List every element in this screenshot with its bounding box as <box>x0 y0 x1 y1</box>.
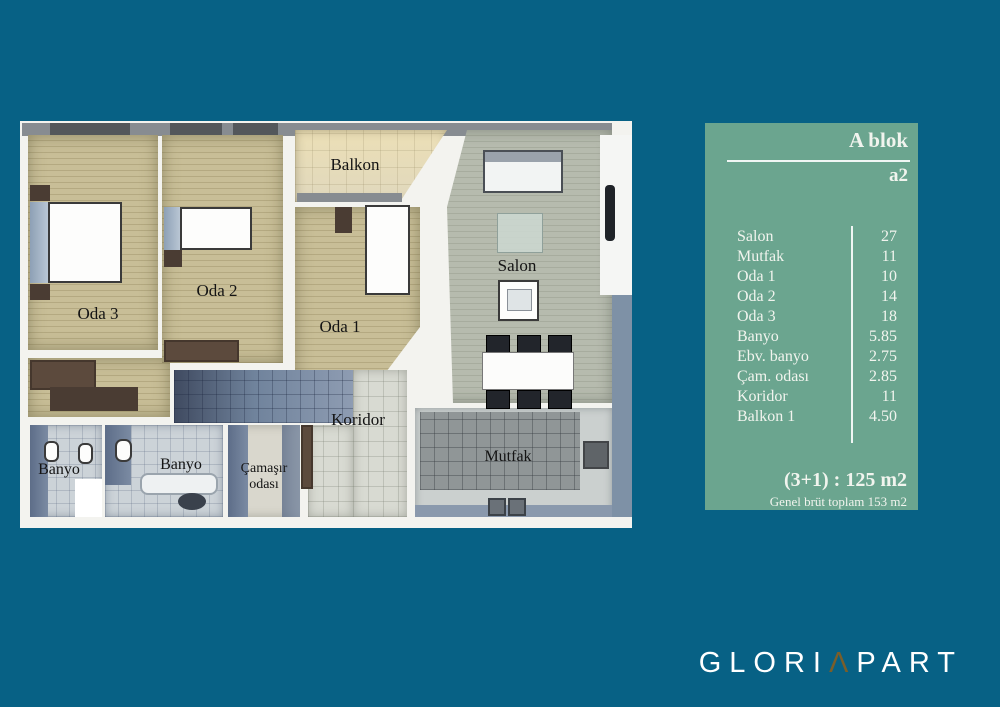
label-salon: Salon <box>498 256 537 276</box>
bed-oda3 <box>48 202 122 283</box>
banyo-small-doorway <box>75 479 102 517</box>
kitchen-sink-left <box>488 498 506 516</box>
label-koridor: Koridor <box>331 410 385 430</box>
summary-note: Genel brüt toplam 153 m2 <box>770 494 907 510</box>
dining-chair <box>486 390 510 409</box>
label-oda1: Oda 1 <box>319 317 360 337</box>
logo-part2: PART <box>856 647 963 679</box>
room-row-label: Salon <box>737 228 773 246</box>
nightstand-oda3-bottom <box>30 284 50 300</box>
room-row-area: 18 <box>881 308 897 326</box>
room-row: Mutfak11 <box>705 248 918 268</box>
koridor-lower-strip <box>308 425 353 517</box>
nightstand-oda3-top <box>30 185 50 201</box>
label-banyo-main: Banyo <box>160 456 202 474</box>
kitchen-sink-right <box>508 498 526 516</box>
stove <box>583 441 609 469</box>
nightstand-oda1 <box>335 207 352 233</box>
room-row-area: 2.85 <box>869 368 897 386</box>
label-camasir-line1: Çamaşır <box>241 461 288 477</box>
label-oda2: Oda 2 <box>196 281 237 301</box>
room-row-label: Mutfak <box>737 248 784 266</box>
bed-oda2 <box>180 207 252 250</box>
logo-part1: GLORI <box>699 647 829 679</box>
room-row-label: Çam. odası <box>737 368 809 386</box>
room-row: Koridor11 <box>705 388 918 408</box>
hall-tiled-band <box>174 370 353 423</box>
bed-headboard-oda3 <box>30 202 48 283</box>
dining-chair <box>548 390 572 409</box>
label-banyo-small: Banyo <box>38 461 80 479</box>
door-panel <box>301 425 313 489</box>
room-row-area: 5.85 <box>869 328 897 346</box>
room-row-area: 11 <box>882 248 897 266</box>
bathtub <box>140 473 218 495</box>
room-row-area: 10 <box>881 268 897 286</box>
panel-divider-line <box>727 160 910 162</box>
room-row-label: Oda 1 <box>737 268 776 286</box>
dining-table <box>482 352 574 390</box>
label-oda3: Oda 3 <box>77 304 118 324</box>
dresser-oda2 <box>164 340 239 362</box>
sofa <box>483 150 563 193</box>
room-table: Salon27Mutfak11Oda 110Oda 214Oda 318Bany… <box>705 228 918 428</box>
room-row-label: Oda 2 <box>737 288 776 306</box>
toilet <box>44 441 59 462</box>
room-row: Oda 214 <box>705 288 918 308</box>
bed-oda1 <box>365 205 410 295</box>
tv <box>605 185 615 241</box>
toilet-main <box>115 439 132 462</box>
nightstand-oda2 <box>164 250 182 267</box>
room-row-area: 27 <box>881 228 897 246</box>
dining-chair <box>517 390 541 409</box>
room-row-label: Balkon 1 <box>737 408 795 426</box>
room-row-area: 2.75 <box>869 348 897 366</box>
unit-title: a2 <box>889 165 908 187</box>
block-title: A blok <box>849 128 908 153</box>
room-row: Oda 318 <box>705 308 918 328</box>
logo-accent-caret: Λ <box>829 647 856 679</box>
room-koridor <box>353 370 407 517</box>
room-row-label: Banyo <box>737 328 779 346</box>
room-row-area: 14 <box>881 288 897 306</box>
desk-oda3 <box>50 387 138 411</box>
room-row-label: Oda 3 <box>737 308 776 326</box>
room-row-label: Ebv. banyo <box>737 348 809 366</box>
room-row: Ebv. banyo2.75 <box>705 348 918 368</box>
label-mutfak: Mutfak <box>484 448 531 466</box>
room-row-area: 11 <box>882 388 897 406</box>
armchair-cushion <box>507 289 532 311</box>
room-row: Salon27 <box>705 228 918 248</box>
room-row: Oda 110 <box>705 268 918 288</box>
wardrobe-oda3 <box>30 360 96 390</box>
coffee-table <box>497 213 543 253</box>
room-row: Çam. odası2.85 <box>705 368 918 388</box>
label-balkon: Balkon <box>330 155 379 175</box>
bed-headboard-oda2 <box>164 207 180 250</box>
armchair <box>498 280 539 321</box>
label-camasir-line2: odası <box>241 477 288 493</box>
sink-basin <box>178 493 206 510</box>
label-camasir: Çamaşır odası <box>241 461 288 493</box>
bidet <box>78 443 93 464</box>
room-row: Balkon 14.50 <box>705 408 918 428</box>
brand-logo: GLORIΛPART <box>699 647 963 680</box>
room-row: Banyo5.85 <box>705 328 918 348</box>
sofa-back <box>485 152 561 162</box>
room-row-label: Koridor <box>737 388 788 406</box>
balkon-rail <box>297 193 402 202</box>
info-panel: A blok a2 Salon27Mutfak11Oda 110Oda 214O… <box>705 123 918 510</box>
floor-plan: Balkon Oda 3 Oda 2 Oda 1 Salon Koridor B… <box>20 121 632 528</box>
summary-total: (3+1) : 125 m2 <box>784 469 907 492</box>
room-row-area: 4.50 <box>869 408 897 426</box>
page: { "background_color": "#076185", "floor_… <box>0 0 1000 707</box>
